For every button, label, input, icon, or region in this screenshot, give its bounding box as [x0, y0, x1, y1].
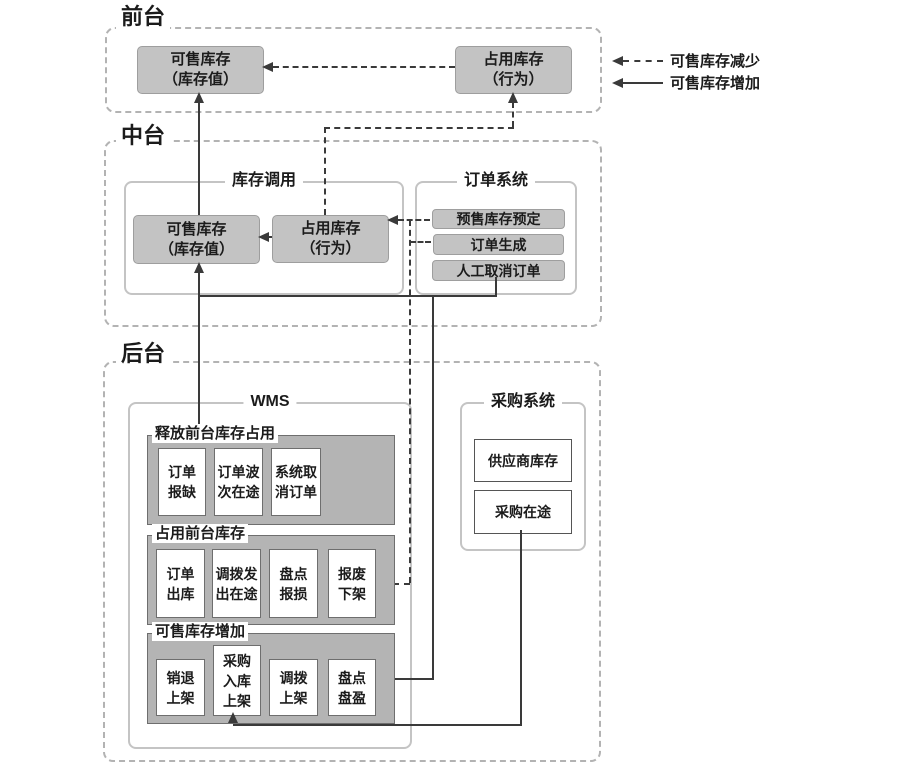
connector-increase-horizontal [198, 295, 497, 297]
section-back-label: 后台 [116, 341, 170, 367]
panel-order-system-label: 订单系统 [457, 171, 535, 191]
dashed-presale-to-occupied [398, 219, 430, 221]
arrowhead-into-front-occupied [508, 92, 518, 103]
order-item-order-create: 订单生成 [433, 234, 564, 255]
dashed-order-create-stub [410, 241, 431, 243]
group-increase-sellable: 可售库存增加 销退 上架 采购 入库 上架 调拨 上架 盘点 盘盈 [147, 633, 395, 724]
item-supplier-inventory: 供应商库存 [474, 439, 572, 482]
legend-dashed-arrow-icon [612, 56, 623, 66]
item-purchase-inbound-shelf: 采购 入库 上架 [213, 645, 261, 716]
dashed-bridge-horizontal [324, 127, 514, 129]
arrowhead-into-increase-group [228, 712, 238, 723]
section-front-label: 前台 [116, 4, 170, 30]
item-order-shortage: 订单 报缺 [158, 448, 206, 516]
legend-solid-arrow-icon [612, 78, 623, 88]
item-count-loss: 盘点 报损 [269, 549, 318, 618]
order-item-manual-cancel: 人工取消订单 [432, 260, 565, 281]
item-system-cancel-order: 系统取 消订单 [271, 448, 321, 516]
dashed-occupy-group-stub [393, 583, 410, 585]
group-release-occupy-label: 释放前台库存占用 [152, 424, 278, 443]
group-increase-sellable-label: 可售库存增加 [152, 622, 248, 641]
diagram-canvas: 前台 中台 后台 可售库存减少 可售库存增加 可售库存 （库存值） 占用库存 （… [0, 0, 905, 784]
dashed-from-middle-occupied-top [324, 127, 326, 215]
dashed-decrease-vertical [409, 220, 411, 583]
arrowhead-into-middle-occupied [387, 215, 398, 225]
section-middle-label: 中台 [116, 123, 170, 149]
connector-manual-cancel-drop [495, 277, 497, 295]
order-item-presale-reserve: 预售库存预定 [432, 209, 565, 229]
arrowhead-into-middle-sellable-dashed [258, 232, 269, 242]
panel-purchase-system-label: 采购系统 [484, 392, 562, 412]
box-front-occupied: 占用库存 （行为） [455, 46, 572, 94]
connector-increase-group-stub [393, 678, 434, 680]
arrowhead-into-middle-sellable [194, 262, 204, 273]
legend-decrease-label: 可售库存减少 [670, 52, 760, 71]
item-transfer-shelf: 调拨 上架 [269, 659, 318, 716]
item-transfer-out-transit: 调拨发 出在途 [212, 549, 261, 618]
item-order-outbound: 订单 出库 [156, 549, 205, 618]
item-count-surplus: 盘点 盘盈 [328, 659, 376, 716]
item-sales-return-shelf: 销退 上架 [156, 659, 205, 716]
connector-purchase-transit-horizontal [233, 724, 522, 726]
box-middle-occupied: 占用库存 （行为） [272, 215, 389, 263]
item-order-wave-transit: 订单波 次在途 [214, 448, 263, 516]
connector-purchase-transit-drop [520, 530, 522, 724]
legend-increase-label: 可售库存增加 [670, 74, 760, 93]
box-front-sellable: 可售库存 （库存值） [137, 46, 264, 94]
legend-solid-line [623, 82, 663, 84]
item-scrap-offshelf: 报废 下架 [328, 549, 376, 618]
dashed-front-occupied-to-sellable [273, 66, 455, 68]
arrowhead-into-front-sellable-dashed [262, 62, 273, 72]
connector-increase-group-vertical [432, 295, 434, 680]
panel-purchase-system: 采购系统 供应商库存 采购在途 [460, 402, 586, 551]
panel-wms-label: WMS [243, 392, 296, 412]
panel-inventory-call-label: 库存调用 [225, 171, 303, 191]
dashed-up-to-front-occupied [512, 102, 514, 127]
group-release-occupy: 释放前台库存占用 订单 报缺 订单波 次在途 系统取 消订单 [147, 435, 395, 525]
box-middle-sellable: 可售库存 （库存值） [133, 215, 260, 264]
legend-dashed-line [623, 60, 663, 62]
group-occupy-front-label: 占用前台库存 [152, 524, 248, 543]
group-occupy-front: 占用前台库存 订单 出库 调拨发 出在途 盘点 报损 报废 下架 [147, 535, 395, 625]
arrowhead-into-front-sellable [194, 92, 204, 103]
item-purchase-transit: 采购在途 [474, 490, 572, 534]
